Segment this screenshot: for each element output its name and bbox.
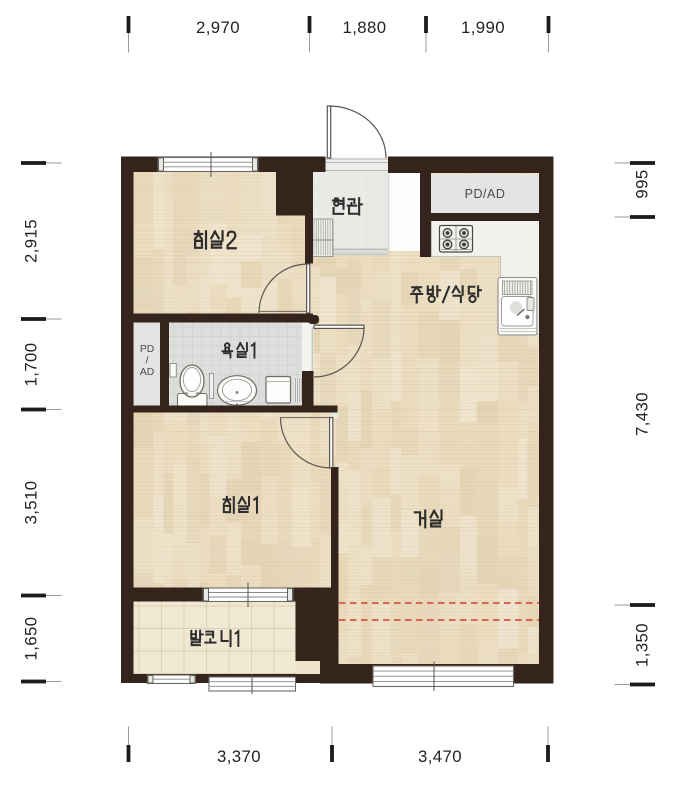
svg-text:/: / xyxy=(146,356,149,367)
svg-text:1,350: 1,350 xyxy=(633,623,652,667)
svg-text:PD: PD xyxy=(140,344,154,355)
svg-text:2,915: 2,915 xyxy=(22,219,41,263)
svg-text:2,970: 2,970 xyxy=(196,18,240,37)
svg-text:1,990: 1,990 xyxy=(461,18,505,37)
svg-text:AD: AD xyxy=(140,367,154,378)
svg-text:7,430: 7,430 xyxy=(633,392,652,436)
svg-text:1,700: 1,700 xyxy=(22,343,41,387)
svg-text:995: 995 xyxy=(633,169,652,198)
svg-text:3,470: 3,470 xyxy=(418,747,462,766)
svg-text:1,650: 1,650 xyxy=(22,617,41,661)
svg-text:3,510: 3,510 xyxy=(22,481,41,525)
svg-text:PD/AD: PD/AD xyxy=(465,187,506,201)
svg-text:1,880: 1,880 xyxy=(343,18,387,37)
svg-text:3,370: 3,370 xyxy=(217,747,261,766)
